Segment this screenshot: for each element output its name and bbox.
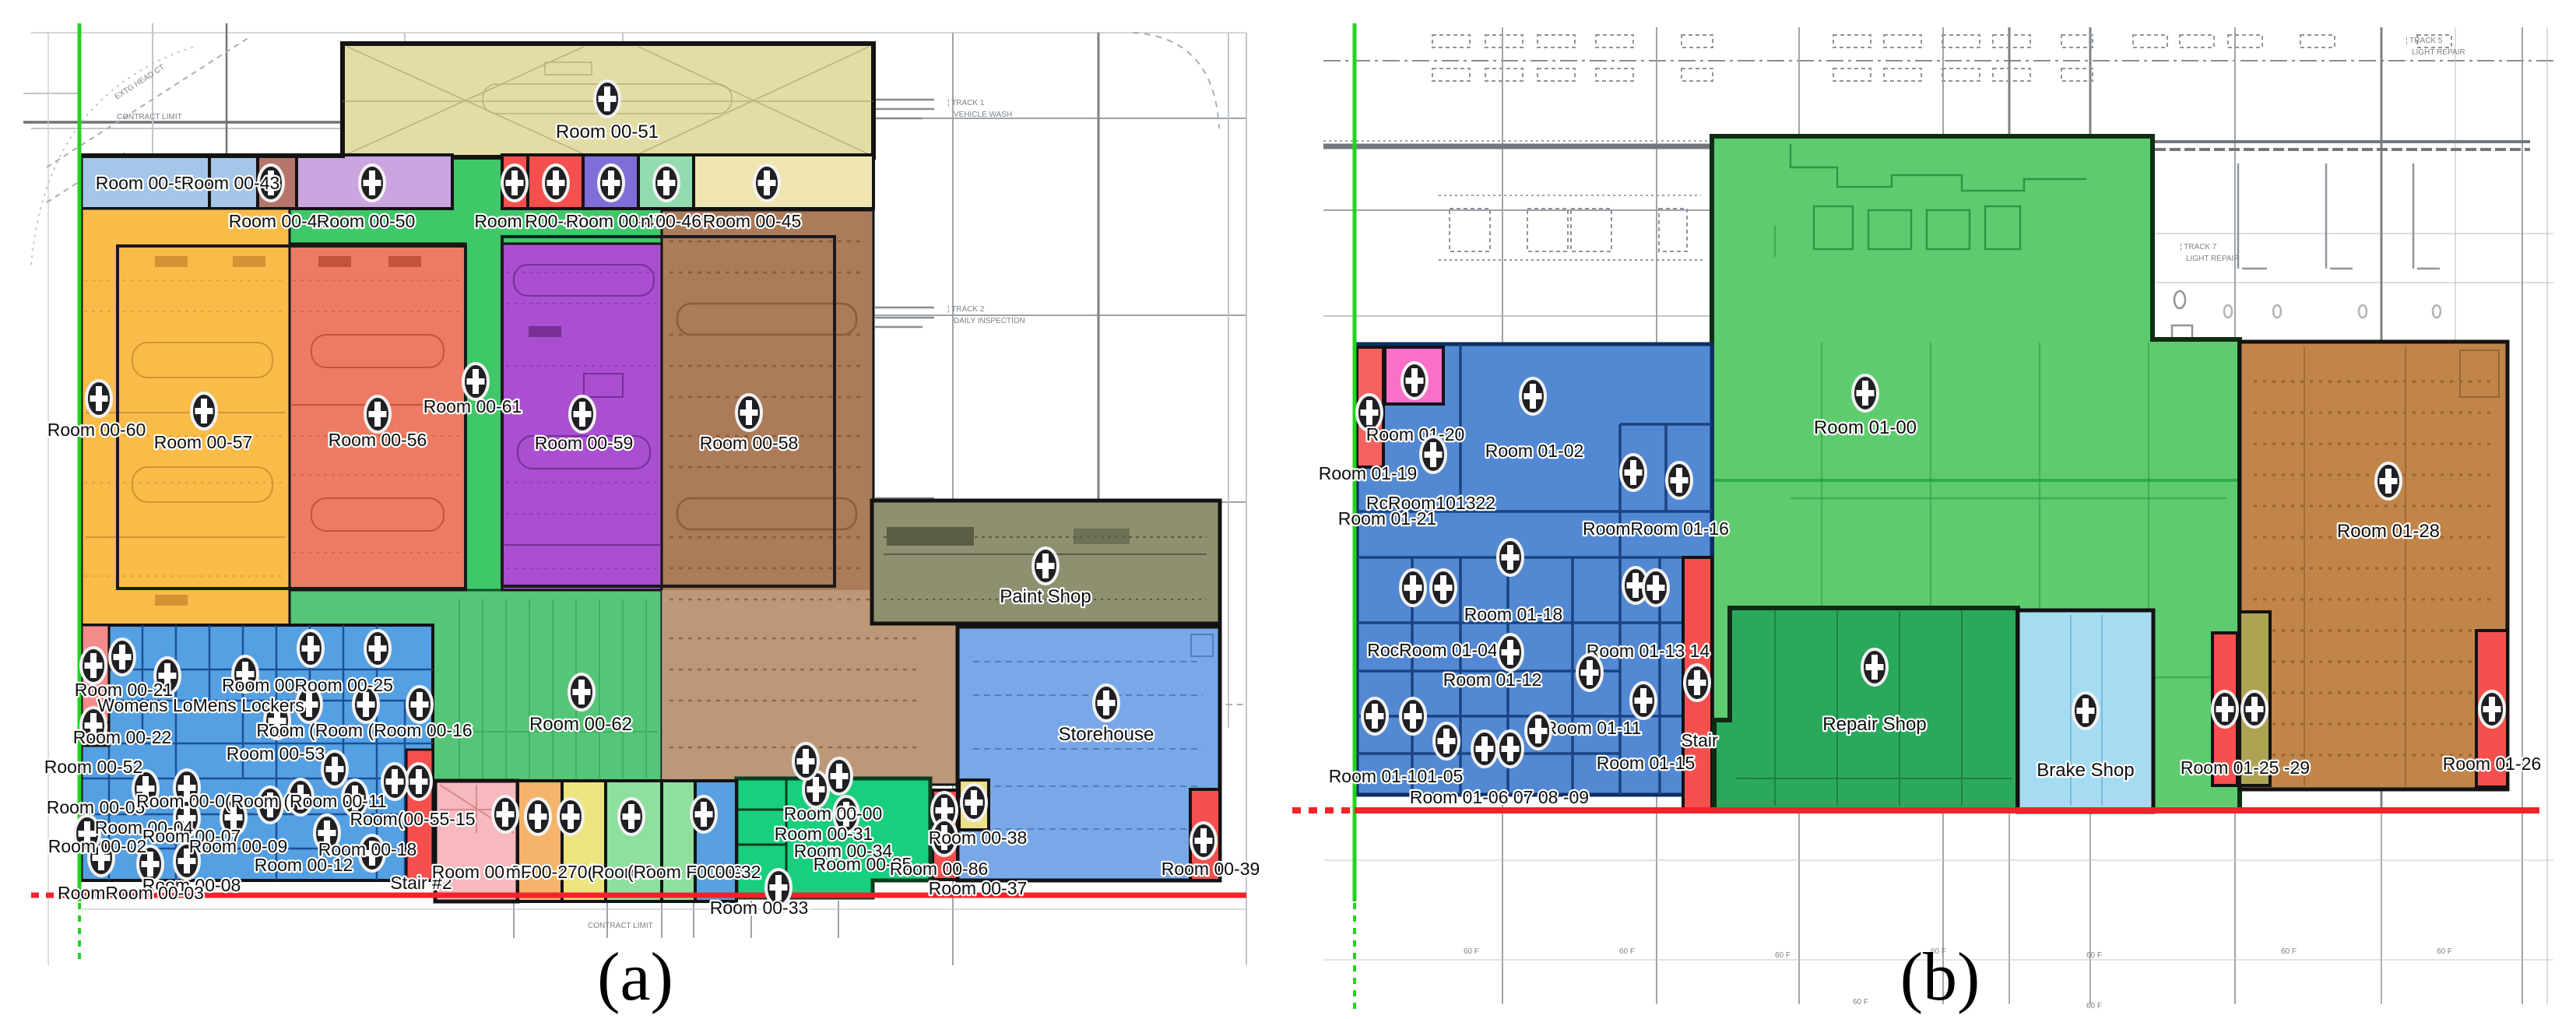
svg-text:Room 00-44: Room 00-44 bbox=[229, 211, 328, 231]
svg-text:Room 01-101-05: Room 01-101-05 bbox=[1329, 766, 1464, 786]
svg-text:Room(00-55-15: Room(00-55-15 bbox=[350, 809, 475, 829]
svg-text:Room 01-13 14: Room 01-13 14 bbox=[1587, 641, 1710, 661]
svg-text:Room 01-02: Room 01-02 bbox=[1485, 441, 1584, 461]
svg-text:60 F: 60 F bbox=[2086, 1002, 2102, 1010]
svg-text:¦ TRACK 5: ¦ TRACK 5 bbox=[2406, 37, 2443, 45]
svg-text:RoomRoom 01-16: RoomRoom 01-16 bbox=[1583, 518, 1729, 539]
svg-text:Room 00-38: Room 00-38 bbox=[929, 827, 1028, 848]
svg-text:n 00-46: n 00-46 bbox=[641, 211, 701, 231]
svg-text:¦ TRACK 7: ¦ TRACK 7 bbox=[2180, 243, 2217, 251]
svg-text:Room 00-45: Room 00-45 bbox=[703, 211, 802, 231]
svg-text:Room 01-12: Room 01-12 bbox=[1443, 669, 1542, 690]
svg-text:CONTRACT LIMIT: CONTRACT LIMIT bbox=[588, 922, 653, 930]
svg-text:Room 00Room 00-25: Room 00Room 00-25 bbox=[222, 675, 393, 695]
svg-text:¦ TRACK 2: ¦ TRACK 2 bbox=[947, 305, 985, 314]
svg-text:60 F: 60 F bbox=[2281, 947, 2297, 956]
svg-text:Room 00-39: Room 00-39 bbox=[1161, 859, 1260, 879]
svg-text:Brake Shop: Brake Shop bbox=[2037, 760, 2134, 781]
svg-text:Room 01-26: Room 01-26 bbox=[2443, 754, 2542, 774]
svg-text:Room 00-22: Room 00-22 bbox=[73, 727, 172, 747]
svg-text:LIGHT REPAIR: LIGHT REPAIR bbox=[2186, 255, 2240, 263]
svg-text:Room 00-50: Room 00-50 bbox=[317, 211, 416, 231]
svg-text:Room 01-28: Room 01-28 bbox=[2337, 521, 2440, 542]
svg-text:Room 00-62: Room 00-62 bbox=[529, 714, 632, 735]
svg-text:60 F: 60 F bbox=[2086, 951, 2102, 960]
svg-text:Room 00-37: Room 00-37 bbox=[929, 878, 1028, 898]
svg-text:60 F: 60 F bbox=[1853, 998, 1868, 1007]
svg-text:Room 00-60: Room 00-60 bbox=[47, 420, 146, 440]
svg-text:Room 00-18: Room 00-18 bbox=[318, 839, 417, 859]
svg-text:Room 01-15: Room 01-15 bbox=[1597, 753, 1696, 773]
svg-text:Room 00-58: Room 00-58 bbox=[700, 433, 799, 453]
svg-text:¦ TRACK 1: ¦ TRACK 1 bbox=[947, 99, 985, 107]
svg-text:(a): (a) bbox=[597, 940, 673, 1015]
svg-text:Room 00-05: Room 00-05 bbox=[47, 797, 146, 817]
svg-text:mF00-270(: mF00-270( bbox=[506, 862, 594, 882]
svg-text:VEHICLE WASH: VEHICLE WASH bbox=[954, 111, 1012, 119]
svg-text:Room 00-02: Room 00-02 bbox=[48, 836, 147, 856]
svg-text:Room: Room bbox=[474, 211, 522, 231]
svg-text:Room (Room (Room 00-16: Room (Room (Room 00-16 bbox=[256, 720, 472, 740]
svg-text:Room 00-86: Room 00-86 bbox=[890, 859, 989, 879]
svg-text:Storehouse: Storehouse bbox=[1059, 724, 1154, 745]
svg-text:(b): (b) bbox=[1900, 940, 1980, 1015]
svg-text:60 F: 60 F bbox=[1775, 951, 1791, 960]
svg-text:Room 01-25 -29: Room 01-25 -29 bbox=[2181, 757, 2310, 778]
svg-text:CONTRACT LIMIT: CONTRACT LIMIT bbox=[117, 113, 182, 121]
svg-text:Room 00-57: Room 00-57 bbox=[154, 432, 253, 452]
svg-text:60 F: 60 F bbox=[2437, 947, 2452, 956]
svg-text:Room 01-18: Room 01-18 bbox=[1464, 604, 1563, 624]
svg-text:Room 01-21: Room 01-21 bbox=[1338, 508, 1437, 529]
svg-text:Room 00-33: Room 00-33 bbox=[710, 898, 809, 918]
svg-text:Room 00-54: Room 00-54 bbox=[96, 173, 195, 193]
svg-text:Room 01-06 07 08 -09: Room 01-06 07 08 -09 bbox=[1410, 787, 1589, 807]
svg-text:Room 00-43: Room 00-43 bbox=[181, 173, 280, 193]
svg-text:Paint Shop: Paint Shop bbox=[1000, 586, 1091, 607]
svg-text:Room 01-11: Room 01-11 bbox=[1545, 718, 1642, 738]
svg-text:Room 00-61: Room 00-61 bbox=[423, 396, 522, 416]
svg-text:Room 00-56: Room 00-56 bbox=[329, 430, 427, 450]
svg-text:Repair Shop: Repair Shop bbox=[1822, 714, 1926, 735]
svg-text:60 F: 60 F bbox=[1464, 947, 1479, 956]
svg-text:Stair: Stair bbox=[1681, 730, 1718, 750]
svg-text:Room 00-51: Room 00-51 bbox=[556, 121, 659, 142]
svg-text:RoomRoom 00-03: RoomRoom 00-03 bbox=[58, 883, 204, 903]
svg-text:60 F: 60 F bbox=[1619, 947, 1635, 956]
svg-text:Room 00-52: Room 00-52 bbox=[44, 757, 143, 777]
svg-text:Room 01-19: Room 01-19 bbox=[1319, 463, 1418, 483]
svg-text:Room 00-00: Room 00-00 bbox=[784, 803, 883, 824]
svg-text:Room 00-09: Room 00-09 bbox=[189, 836, 288, 856]
svg-text:Womens LoMens Lockers: Womens LoMens Lockers bbox=[97, 695, 304, 715]
svg-text:Room 01-00: Room 01-00 bbox=[1814, 417, 1917, 438]
svg-text:Room 00-59: Room 00-59 bbox=[535, 433, 634, 453]
svg-text:Room 01-20: Room 01-20 bbox=[1366, 424, 1465, 444]
svg-text:LIGHT REPAIR: LIGHT REPAIR bbox=[2412, 48, 2465, 57]
svg-text:Room 00-53: Room 00-53 bbox=[227, 743, 325, 764]
svg-text:00-32: 00-32 bbox=[715, 862, 761, 882]
svg-text:DAILY INSPECTION: DAILY INSPECTION bbox=[954, 317, 1025, 325]
svg-text:RocRoom 01-04: RocRoom 01-04 bbox=[1367, 640, 1498, 660]
